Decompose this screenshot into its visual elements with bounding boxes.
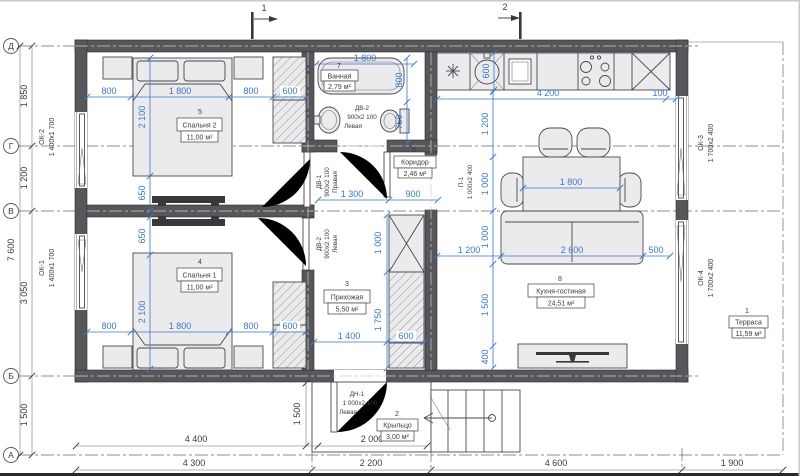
door-size: 900х2 100 [324, 167, 331, 197]
dim-text: 800 [394, 72, 404, 87]
door-size: 1 000х2 100 [343, 400, 378, 407]
dim-text: 1 200 [458, 245, 481, 255]
door-label-dv1: ДВ-1 900х2 100 Правая [316, 167, 339, 197]
window-size: 1 400х1 700 [49, 249, 56, 288]
washing-machine-icon [446, 64, 460, 78]
door-code: ДВ-2 [316, 236, 323, 251]
dim-text: 1 800 [560, 177, 583, 187]
chair [577, 128, 610, 157]
room-number: 8 [558, 276, 562, 283]
dim-text: 1 000 [373, 232, 383, 255]
dim-text: 1 200 [19, 167, 29, 190]
porch-stairs [424, 390, 520, 452]
dim-text: 3 050 [19, 282, 29, 305]
dim-text: 2 200 [360, 458, 383, 468]
axis-label: Г [9, 141, 14, 151]
room-label-hall: 3 Прихожая 5,50 м² [324, 281, 370, 314]
room-name: Прихожая [331, 295, 364, 302]
dim-text: 800 [101, 321, 116, 331]
door-size: 900х2 100 [347, 114, 377, 121]
kitchen-counter [437, 53, 670, 90]
room-label-terrace: 1 Терраса 11,59 м² [729, 308, 768, 338]
dim-text: 900 [405, 189, 420, 199]
nightstand [234, 346, 263, 368]
dim-text: 100 [652, 88, 667, 98]
room-area: 2,79 м² [328, 84, 351, 91]
opening-label-p1: П-1 1 000х2 400 [458, 164, 474, 199]
dim-text: 1 000 [480, 226, 490, 249]
room-number: 7 [337, 63, 341, 70]
room-area: 11,59 м² [735, 331, 762, 338]
room-name: Терраса [735, 320, 762, 327]
section-mark-1: 1 [251, 3, 278, 39]
room-area: 11,00 м² [186, 135, 213, 142]
dim-left-segments: 1 850 1 200 3 050 1 500 [19, 43, 35, 458]
dim-text: 400 [480, 349, 490, 364]
dim-kitchen-vertical: 1 200 1 000 1 000 1 500 400 [480, 89, 496, 371]
opening-code: П-1 [458, 176, 465, 187]
dim-text: 800 [243, 321, 258, 331]
tv [536, 352, 609, 355]
section-number: 1 [261, 3, 266, 13]
door-code: ДН-1 [350, 391, 365, 398]
dim-text: 1 500 [480, 294, 490, 317]
dim-text: 650 [137, 228, 147, 243]
door-hand: Левая [332, 235, 339, 253]
dim-text: 4 300 [183, 458, 206, 468]
dim-text: 600 [398, 331, 413, 341]
door-code: ДВ-1 [316, 174, 323, 189]
dim-text: 1 800 [169, 321, 192, 331]
dim-text: 1 750 [373, 309, 383, 332]
bedroom1-furniture [103, 216, 306, 370]
dim-text: 2 000 [361, 434, 384, 444]
dim-text: 4 600 [545, 458, 568, 468]
room-name: Крыльцо [383, 423, 412, 430]
dim-text: 1 500 [19, 404, 29, 427]
room-area: 3,00 м² [386, 434, 409, 441]
door-hand: Левая [344, 123, 362, 130]
dim-text: 4 400 [185, 434, 208, 444]
window-code: ОК-2 [39, 129, 46, 145]
oven-icon [509, 59, 531, 84]
room-number: 4 [198, 259, 202, 266]
room-name: Кухня-гостиная [536, 289, 586, 296]
dim-text: 1 800 [169, 86, 192, 96]
chair [618, 173, 641, 207]
nightstand [103, 346, 132, 368]
dim-text: 2 600 [561, 245, 584, 255]
room-name: Спальня 1 [183, 273, 217, 280]
axis-label: Д [8, 41, 14, 51]
dim-text: 1 850 [19, 85, 29, 108]
nightstand [234, 57, 263, 79]
pillow [137, 61, 178, 81]
dim-text: 600 [282, 321, 297, 331]
dim-text: 600 [282, 86, 297, 96]
floor-plan-page: Д Г В Б А 1 2 7 600 1 850 1 2 [0, 0, 800, 476]
room-area: 24,51 м² [548, 301, 575, 308]
tv-unit [152, 219, 225, 226]
door-bedroom1 [258, 218, 309, 270]
dim-text: 800 [101, 86, 116, 96]
dim-text: 1 500 [292, 403, 302, 426]
room-number: 6 [412, 147, 416, 154]
window-label-ok4: ОК-4 1 700х2 400 [698, 259, 715, 298]
window-size: 1 700х2 400 [708, 124, 715, 163]
window-code: ОК-4 [698, 270, 705, 286]
door-label-dv2-bedroom1: ДВ-2 900х2 100 Левая [316, 229, 339, 259]
room-number: 3 [345, 281, 349, 288]
dim-text: 1 200 [480, 113, 490, 136]
room-number: 5 [198, 109, 202, 116]
dim-text: 1 000 [480, 173, 490, 196]
dim-text: 650 [137, 185, 147, 200]
dim-text: 750 [394, 114, 404, 129]
tv-unit [152, 196, 225, 203]
room-number: 2 [395, 411, 399, 418]
hall-closet [389, 215, 424, 368]
window-label-ok2: ОК-2 1 400х1 700 [39, 118, 56, 157]
window-code: ОК-1 [39, 260, 46, 276]
pillow [184, 61, 225, 81]
opening-size: 1 000х2 400 [467, 164, 474, 199]
dim-text: 500 [648, 245, 663, 255]
pillow [137, 348, 178, 368]
axis-label: В [8, 206, 14, 216]
dim-porch-depth: 1 500 [292, 380, 309, 449]
room-name: Ванная [328, 74, 352, 81]
pillow [184, 348, 225, 368]
door-label-dv2-bath: ДВ-2 900х2 100 Левая [344, 105, 377, 130]
dim-text: 1 300 [341, 189, 364, 199]
axis-label: А [8, 450, 14, 460]
dim-hall-vertical: 1 000 1 750 [373, 212, 390, 371]
nightstand [103, 57, 132, 79]
wardrobe [389, 272, 424, 368]
dim-text: 1 900 [721, 458, 744, 468]
kitchen-furniture [437, 53, 670, 368]
window-size: 1 700х2 400 [708, 259, 715, 298]
window-label-ok3: ОК-3 1 700х2 400 [698, 124, 715, 163]
door-hand: Правая [332, 171, 339, 193]
door-bedroom2 [262, 152, 310, 207]
window-code: ОК-3 [698, 135, 705, 151]
section-number: 2 [502, 2, 507, 12]
wall-left [75, 40, 87, 382]
room-name: Коридор [401, 160, 429, 167]
room-area: 5,50 м² [336, 307, 359, 314]
dim-bottom-row2: 4 300 2 200 4 600 1 900 [73, 458, 786, 473]
room-area: 11,00 м² [186, 285, 213, 292]
door-size: 900х2 100 [324, 229, 331, 259]
dim-text: 4 200 [537, 88, 560, 98]
window-size: 1 400х1 700 [49, 118, 56, 157]
dim-text: 800 [243, 86, 258, 96]
dim-text: 600 [481, 63, 491, 78]
room-area: 2,46 м² [404, 171, 427, 178]
room-label-kitchen: 8 Кухня-гостиная 24,51 м² [528, 276, 594, 308]
room-number: 1 [745, 308, 749, 315]
section-marks: 1 2 [251, 2, 522, 39]
chair [539, 128, 572, 157]
dim-text: 1 400 [338, 331, 361, 341]
dim-text: 1 800 [354, 53, 377, 63]
axis-label: Б [8, 371, 14, 381]
dim-text: 2 100 [137, 301, 147, 324]
floor-plan-drawing: Д Г В Б А 1 2 7 600 1 850 1 2 [0, 0, 800, 476]
porch [312, 382, 520, 452]
door-code: ДВ-2 [355, 105, 370, 112]
dim-text: 7 600 [6, 239, 16, 262]
dim-text: 2 100 [137, 106, 147, 129]
door-hand: Левая [339, 409, 357, 416]
window-label-ok1: ОК-1 1 400х1 700 [39, 249, 56, 288]
room-name: Спальня 2 [183, 123, 217, 130]
section-mark-2: 2 [498, 2, 522, 39]
